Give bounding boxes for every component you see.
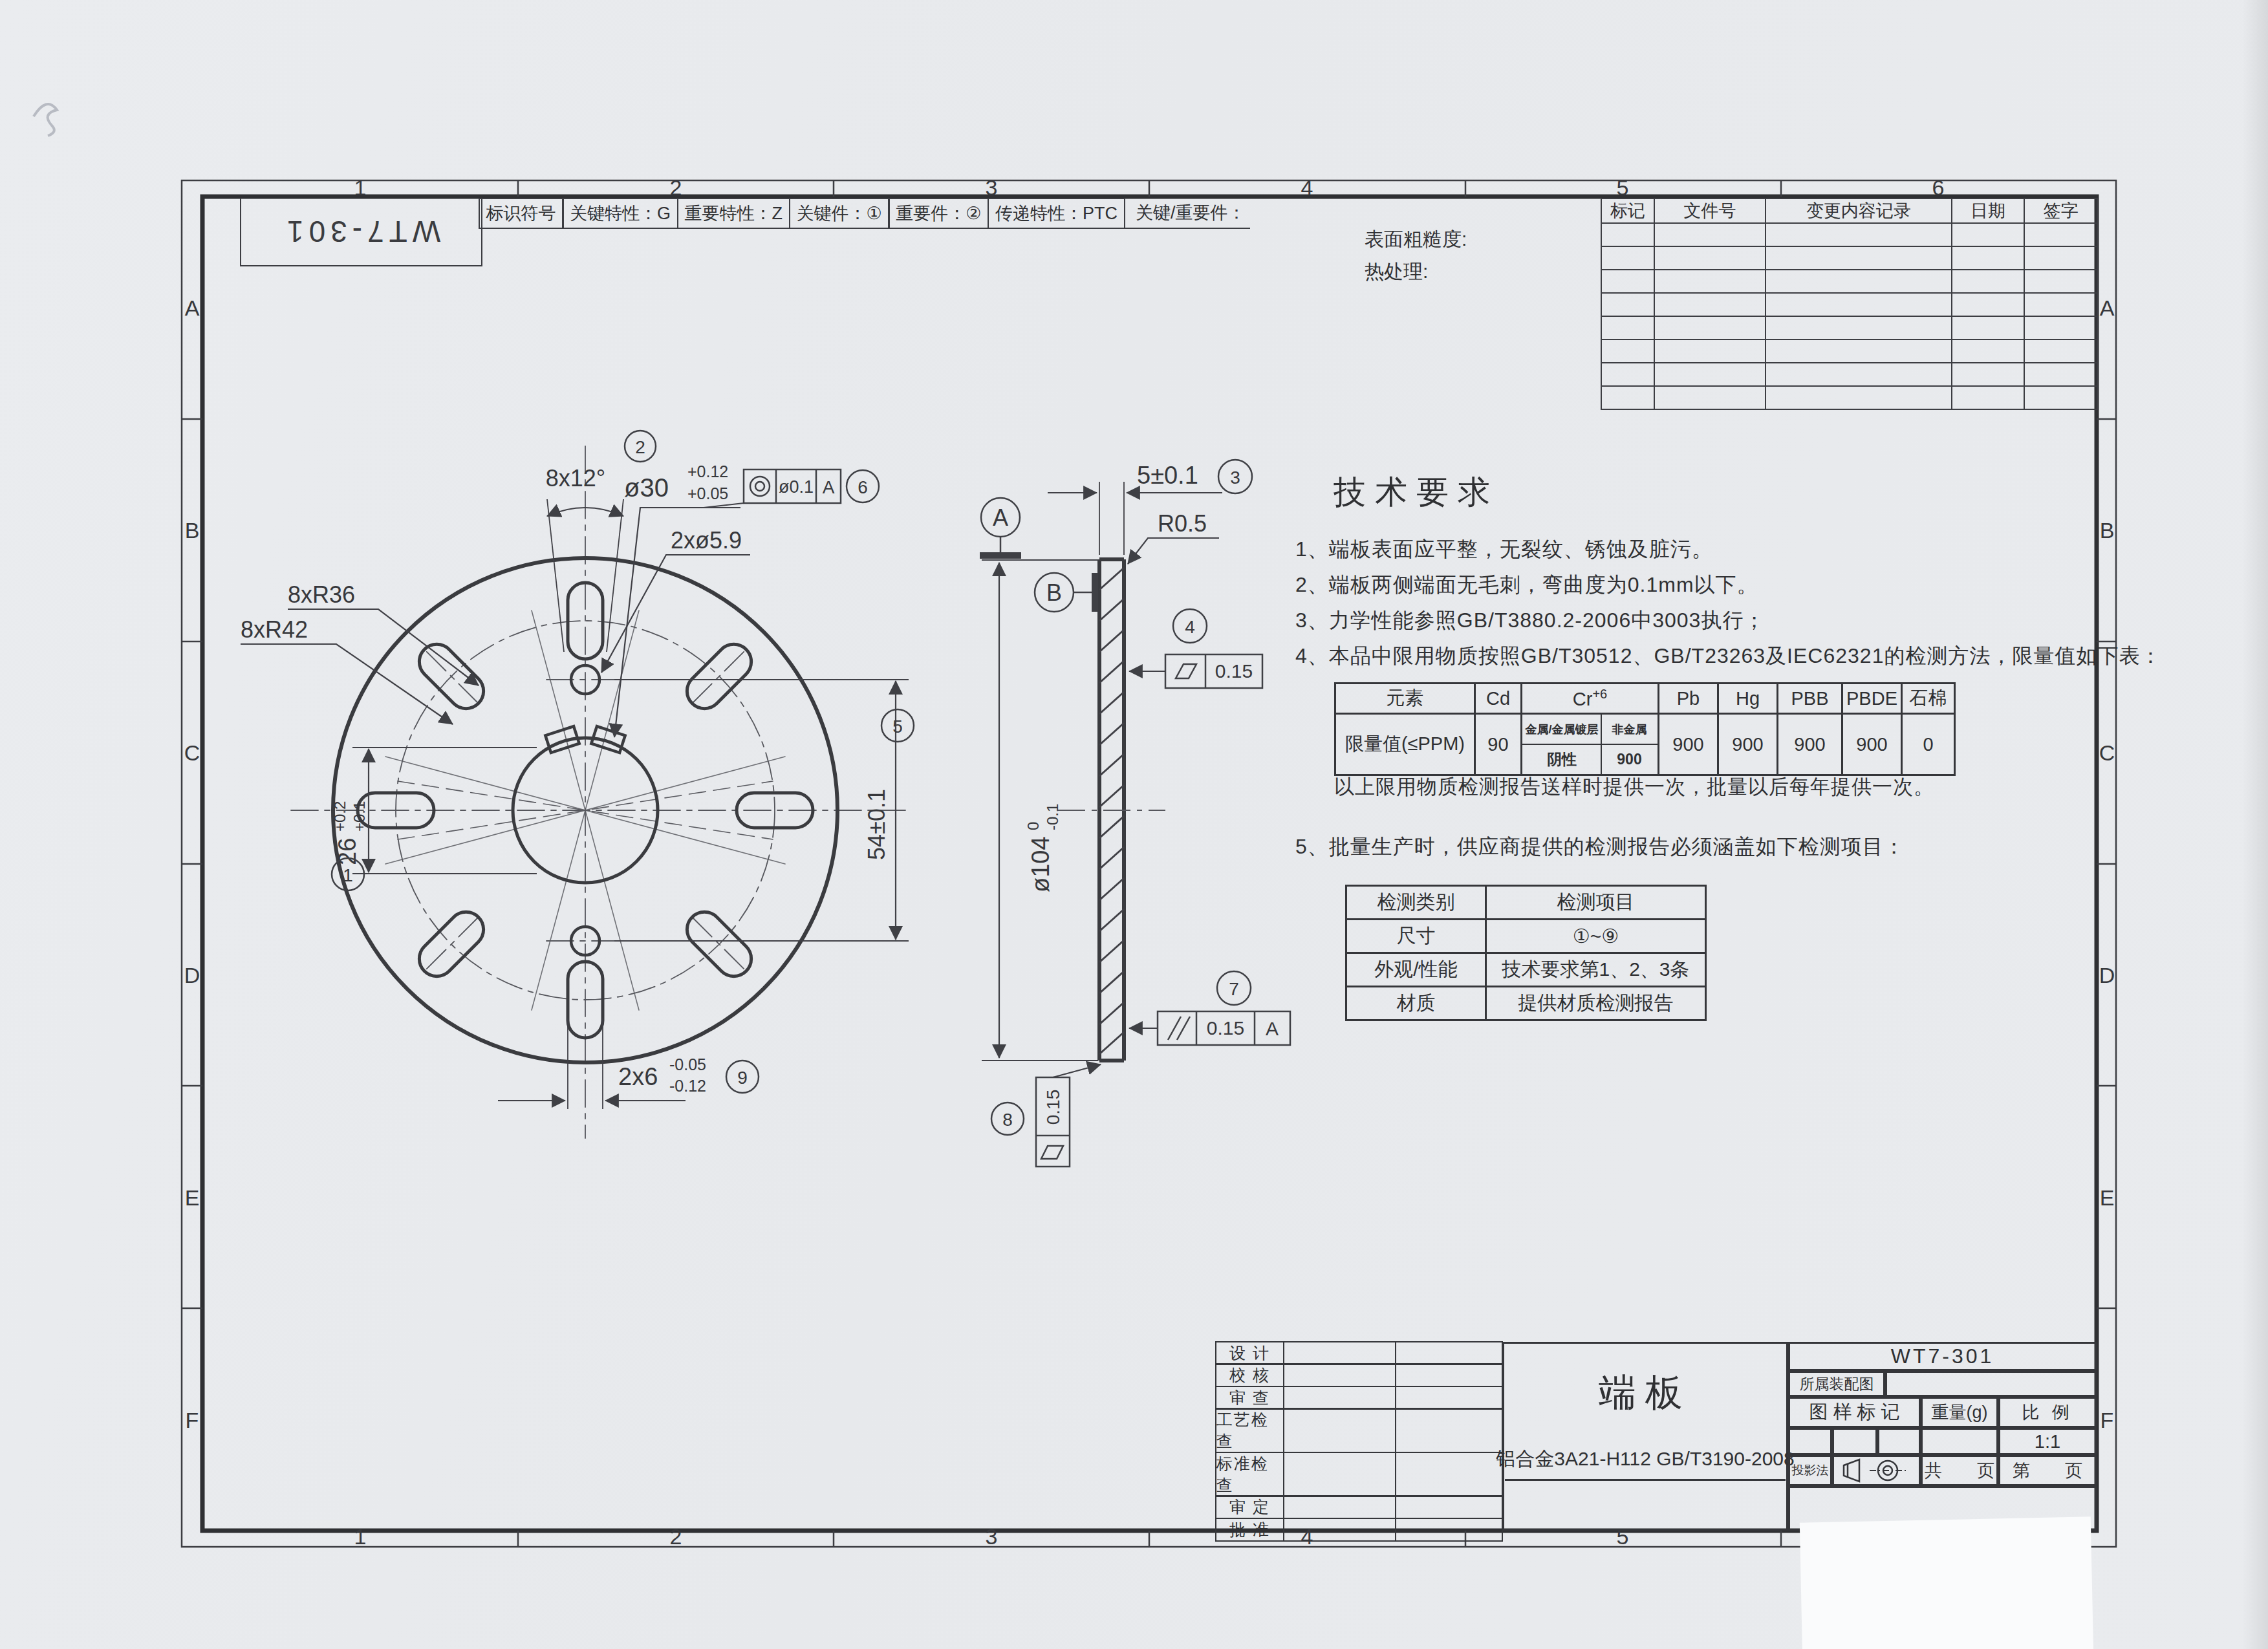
flat2-tol-label: 0.15 xyxy=(1043,1090,1063,1125)
rohs-cr-nonmetal-value: 900 xyxy=(1601,744,1658,775)
svg-text:B: B xyxy=(1046,579,1062,606)
balloon-8: 8 xyxy=(991,1103,1024,1135)
tech-req-item-2: 2、端板两侧端面无毛刺，弯曲度为0.1mm以下。 xyxy=(1295,571,1758,599)
svg-text:6: 6 xyxy=(858,477,868,497)
tech-req-item-5: 5、批量生产时，供应商提供的检测报告必须涵盖如下检测项目： xyxy=(1295,833,1905,861)
rohs-pbb-value: 900 xyxy=(1778,714,1842,775)
slot-w-tol-up: -0.05 xyxy=(669,1055,706,1073)
projection-label: 投影法 xyxy=(1788,1455,1832,1486)
rohs-limits-table: 元素 Cd Cr+6 Pb Hg PBB PBDE 石棉 限量值(≤PPM) 9… xyxy=(1334,682,1956,776)
projection-symbol-cell xyxy=(1832,1455,1921,1486)
assembly-value-cell xyxy=(1885,1371,2097,1397)
surface-roughness-note: 表面粗糙度: xyxy=(1365,223,1467,255)
rohs-asbestos-value: 0 xyxy=(1902,714,1955,775)
sig-design: 设 计 xyxy=(1215,1341,1285,1365)
sig-standard: 标准检查 xyxy=(1215,1452,1285,1497)
svg-text:F: F xyxy=(186,1408,199,1432)
balloon-3: 3 xyxy=(1218,460,1252,493)
insp-row-appearance: 外观/性能技术要求第1、2、3条 xyxy=(1346,953,1706,987)
datum-a-flag: A xyxy=(981,498,1020,537)
rohs-cd-value: 90 xyxy=(1475,714,1522,775)
rohs-hg-value: 900 xyxy=(1718,714,1778,775)
signature-grid: 设 计 校 核 审 查 工艺检查 标准检查 审 定 批 准 xyxy=(1216,1342,1502,1531)
corner-code-box: WT7-301 xyxy=(240,198,482,266)
rev-empty-row xyxy=(1601,246,2097,270)
rohs-cr-metal-value: 阴性 xyxy=(1522,744,1602,775)
mark-cell-1 xyxy=(1788,1428,1832,1455)
holes-dim: 2xø5.9 xyxy=(671,527,742,554)
slot-r-inner: 8xR36 xyxy=(288,581,355,608)
sig-approve: 批 准 xyxy=(1215,1518,1285,1542)
rohs-h-hg: Hg xyxy=(1718,684,1778,714)
balloon-5: 5 xyxy=(881,709,914,742)
bore-tol-dn: +0.05 xyxy=(687,484,728,502)
svg-text:2: 2 xyxy=(670,175,682,200)
svg-text:0: 0 xyxy=(1024,822,1042,830)
insp-row-material: 材质提供材质检测报告 xyxy=(1346,987,1706,1020)
strip-tail: 关键/重要件： xyxy=(1125,198,1251,229)
pages-total: 共 页 xyxy=(1921,1455,1998,1486)
bore-dim: ø30 xyxy=(624,473,669,502)
rev-h-docno: 文件号 xyxy=(1654,199,1766,223)
svg-text:1: 1 xyxy=(354,175,367,200)
drawing-number: WT7-301 xyxy=(1788,1342,2097,1371)
weight-value-cell xyxy=(1921,1428,1998,1455)
balloon-2: 2 xyxy=(625,431,656,462)
balloon-9: 9 xyxy=(726,1061,759,1093)
svg-text:D: D xyxy=(2099,963,2115,987)
bore-tol-up: +0.12 xyxy=(687,462,728,480)
corner-code: WT7-301 xyxy=(282,214,440,249)
sig-check: 校 核 xyxy=(1215,1363,1285,1387)
strip-cell-important-char: 重要特性：Z xyxy=(677,198,791,229)
svg-text:9: 9 xyxy=(737,1068,748,1088)
rohs-pb-value: 900 xyxy=(1659,714,1718,775)
svg-text:E: E xyxy=(185,1185,200,1210)
rev-h-mark: 标记 xyxy=(1601,199,1654,223)
rohs-h-pbb: PBB xyxy=(1778,684,1842,714)
par-datum: A xyxy=(1266,1018,1279,1039)
flat1-tol: 0.15 xyxy=(1215,660,1253,682)
mark-label: 图 样 标 记 xyxy=(1788,1397,1921,1428)
svg-text:B: B xyxy=(185,518,200,543)
material-spec: 铝合金3A21-H112 GB/T3190-2008 xyxy=(1505,1439,1786,1481)
conc-datum: A xyxy=(823,477,835,497)
sig-process: 工艺检查 xyxy=(1215,1408,1285,1453)
svg-text:F: F xyxy=(2101,1408,2114,1432)
rohs-cr-cell: 金属/金属镀层 非金属 阴性 900 xyxy=(1522,714,1659,775)
rohs-cr-metal-label: 金属/金属镀层 xyxy=(1522,714,1602,745)
svg-text:2: 2 xyxy=(635,437,645,457)
rev-h-sign: 签字 xyxy=(2024,199,2097,223)
bc-dim-label: 54±0.1 xyxy=(863,789,890,860)
tech-req-title: 技术要求 xyxy=(1334,471,1499,514)
heat-treatment-note: 热处理: xyxy=(1365,255,1467,288)
strip-cell-key-part: 关键件：① xyxy=(789,198,890,229)
process-notes: 表面粗糙度: 热处理: xyxy=(1365,223,1467,288)
balloon-7: 7 xyxy=(1217,971,1251,1005)
svg-text:B: B xyxy=(2100,518,2115,543)
par-tol: 0.15 xyxy=(1207,1017,1244,1039)
slot-w-dim: 2x6 xyxy=(618,1063,658,1090)
rev-h-date: 日期 xyxy=(1952,199,2024,223)
sig-examine: 审 定 xyxy=(1215,1495,1285,1519)
slot-r-outer: 8xR42 xyxy=(241,616,308,643)
assembly-label: 所属装配图 xyxy=(1788,1371,1885,1397)
insp-h-item: 检测项目 xyxy=(1486,886,1706,920)
rohs-row-label: 限量值(≤PPM) xyxy=(1335,714,1475,775)
rev-empty-row xyxy=(1601,293,2097,316)
pencil-scuff xyxy=(34,104,57,136)
svg-text:5: 5 xyxy=(1617,175,1629,200)
edge-radius-dim: R0.5 xyxy=(1158,510,1207,537)
weight-label: 重量(g) xyxy=(1921,1397,1998,1428)
svg-text:C: C xyxy=(2099,740,2115,765)
rohs-h-cr: Cr+6 xyxy=(1522,684,1659,714)
classification-strip: 标识符号 关键特性：G 重要特性：Z 关键件：① 重要件：② 传递特性：PTC … xyxy=(480,198,1250,229)
svg-text:8: 8 xyxy=(1002,1110,1013,1130)
slot-angle-dim: 8x12° xyxy=(546,465,605,491)
svg-text:3: 3 xyxy=(986,1524,998,1549)
svg-text:C: C xyxy=(184,740,200,765)
scale-value: 1:1 xyxy=(1998,1428,2097,1455)
svg-text:5: 5 xyxy=(892,717,903,737)
front-view-labels: 8x12° 2 ø30 +0.12 +0.05 ø0.1 A 6 2xø5.9 … xyxy=(241,431,914,1095)
section-view xyxy=(1058,559,1165,1061)
first-angle-projection-icon xyxy=(1836,1457,1917,1484)
svg-text:+0.2: +0.2 xyxy=(331,801,349,832)
drawing-sheet: 123456 123456 ABCDEF ABCDEF xyxy=(0,0,2268,1649)
paper-sticker xyxy=(1800,1516,2093,1649)
svg-text:6: 6 xyxy=(1932,175,1945,200)
svg-text:-0.1: -0.1 xyxy=(1044,804,1061,830)
page-number: 第 页 xyxy=(1998,1455,2097,1486)
strip-cell-id: 标识符号 xyxy=(479,198,564,229)
rev-h-change: 变更内容记录 xyxy=(1766,199,1952,223)
strip-cell-ptc: 传递特性：PTC xyxy=(988,198,1125,229)
svg-text:A: A xyxy=(2100,296,2115,320)
insp-row-size: 尺寸①~⑨ xyxy=(1346,920,1706,953)
scale-label: 比 例 xyxy=(1998,1397,2097,1428)
svg-text:1: 1 xyxy=(343,865,353,885)
tech-req-item-1: 1、端板表面应平整，无裂纹、锈蚀及脏污。 xyxy=(1295,535,1713,564)
rohs-pbde-value: 900 xyxy=(1842,714,1902,775)
datum-b-flag: B xyxy=(1035,573,1074,612)
rev-empty-row xyxy=(1601,363,2097,386)
svg-text:A: A xyxy=(185,296,200,320)
revision-table: 标记 文件号 变更内容记录 日期 签字 xyxy=(1601,198,2098,410)
svg-text:7: 7 xyxy=(1229,979,1239,999)
part-name: 端板 xyxy=(1502,1368,1788,1418)
svg-text:3: 3 xyxy=(986,175,998,200)
svg-text:A: A xyxy=(993,504,1008,531)
conc-tol: ø0.1 xyxy=(779,477,814,497)
rohs-h-pb: Pb xyxy=(1659,684,1718,714)
thickness-dim: 5±0.1 xyxy=(1137,462,1198,489)
svg-text:E: E xyxy=(2100,1185,2115,1210)
rev-empty-row xyxy=(1601,316,2097,339)
rev-empty-row xyxy=(1601,270,2097,293)
svg-text:+0.1: +0.1 xyxy=(351,801,368,832)
mark-cell-2 xyxy=(1832,1428,1877,1455)
rohs-cr-nonmetal-label: 非金属 xyxy=(1601,714,1658,745)
svg-text:D: D xyxy=(184,963,200,987)
rohs-h-cd: Cd xyxy=(1475,684,1522,714)
svg-text:3: 3 xyxy=(1230,468,1240,488)
od-dim-label: ø104 0 -0.1 xyxy=(1024,804,1061,892)
front-view xyxy=(291,446,905,1138)
rohs-h-element: 元素 xyxy=(1335,684,1475,714)
svg-text:1: 1 xyxy=(354,1524,367,1549)
title-block: 设 计 校 核 审 查 工艺检查 标准检查 审 定 批 准 端板 铝合金3A21… xyxy=(1216,1342,2097,1531)
svg-text:ø104: ø104 xyxy=(1027,836,1054,892)
svg-text:4: 4 xyxy=(1185,617,1195,637)
strip-cell-important-part: 重要件：② xyxy=(888,198,989,229)
svg-text:4: 4 xyxy=(1301,175,1313,200)
rohs-h-asbestos: 石棉 xyxy=(1902,684,1955,714)
svg-text:0.15: 0.15 xyxy=(1043,1090,1063,1125)
sig-review: 审 查 xyxy=(1215,1386,1285,1410)
tech-req-item-3: 3、力学性能参照GB/T3880.2-2006中3003执行； xyxy=(1295,607,1765,635)
rohs-h-pbde: PBDE xyxy=(1842,684,1902,714)
rohs-note: 以上限用物质检测报告送样时提供一次，批量以后每年提供一次。 xyxy=(1334,773,1934,801)
slot-w-tol-dn: -0.12 xyxy=(669,1077,706,1095)
rev-empty-row xyxy=(1601,386,2097,409)
tech-req-item-4: 4、本品中限用物质按照GB/T30512、GB/T23263及IEC62321的… xyxy=(1295,642,2161,671)
svg-text:2: 2 xyxy=(670,1524,682,1549)
inspection-table: 检测类别 检测项目 尺寸①~⑨ 外观/性能技术要求第1、2、3条 材质提供材质检… xyxy=(1345,885,1707,1021)
balloon-6: 6 xyxy=(847,470,879,502)
insp-h-category: 检测类别 xyxy=(1346,886,1486,920)
rev-empty-row xyxy=(1601,339,2097,363)
balloon-4: 4 xyxy=(1173,609,1207,643)
svg-text:54±0.1: 54±0.1 xyxy=(863,789,890,860)
mark-cell-3 xyxy=(1877,1428,1921,1455)
strip-cell-key-char: 关键特性：G xyxy=(562,198,678,229)
rev-empty-row xyxy=(1601,223,2097,246)
